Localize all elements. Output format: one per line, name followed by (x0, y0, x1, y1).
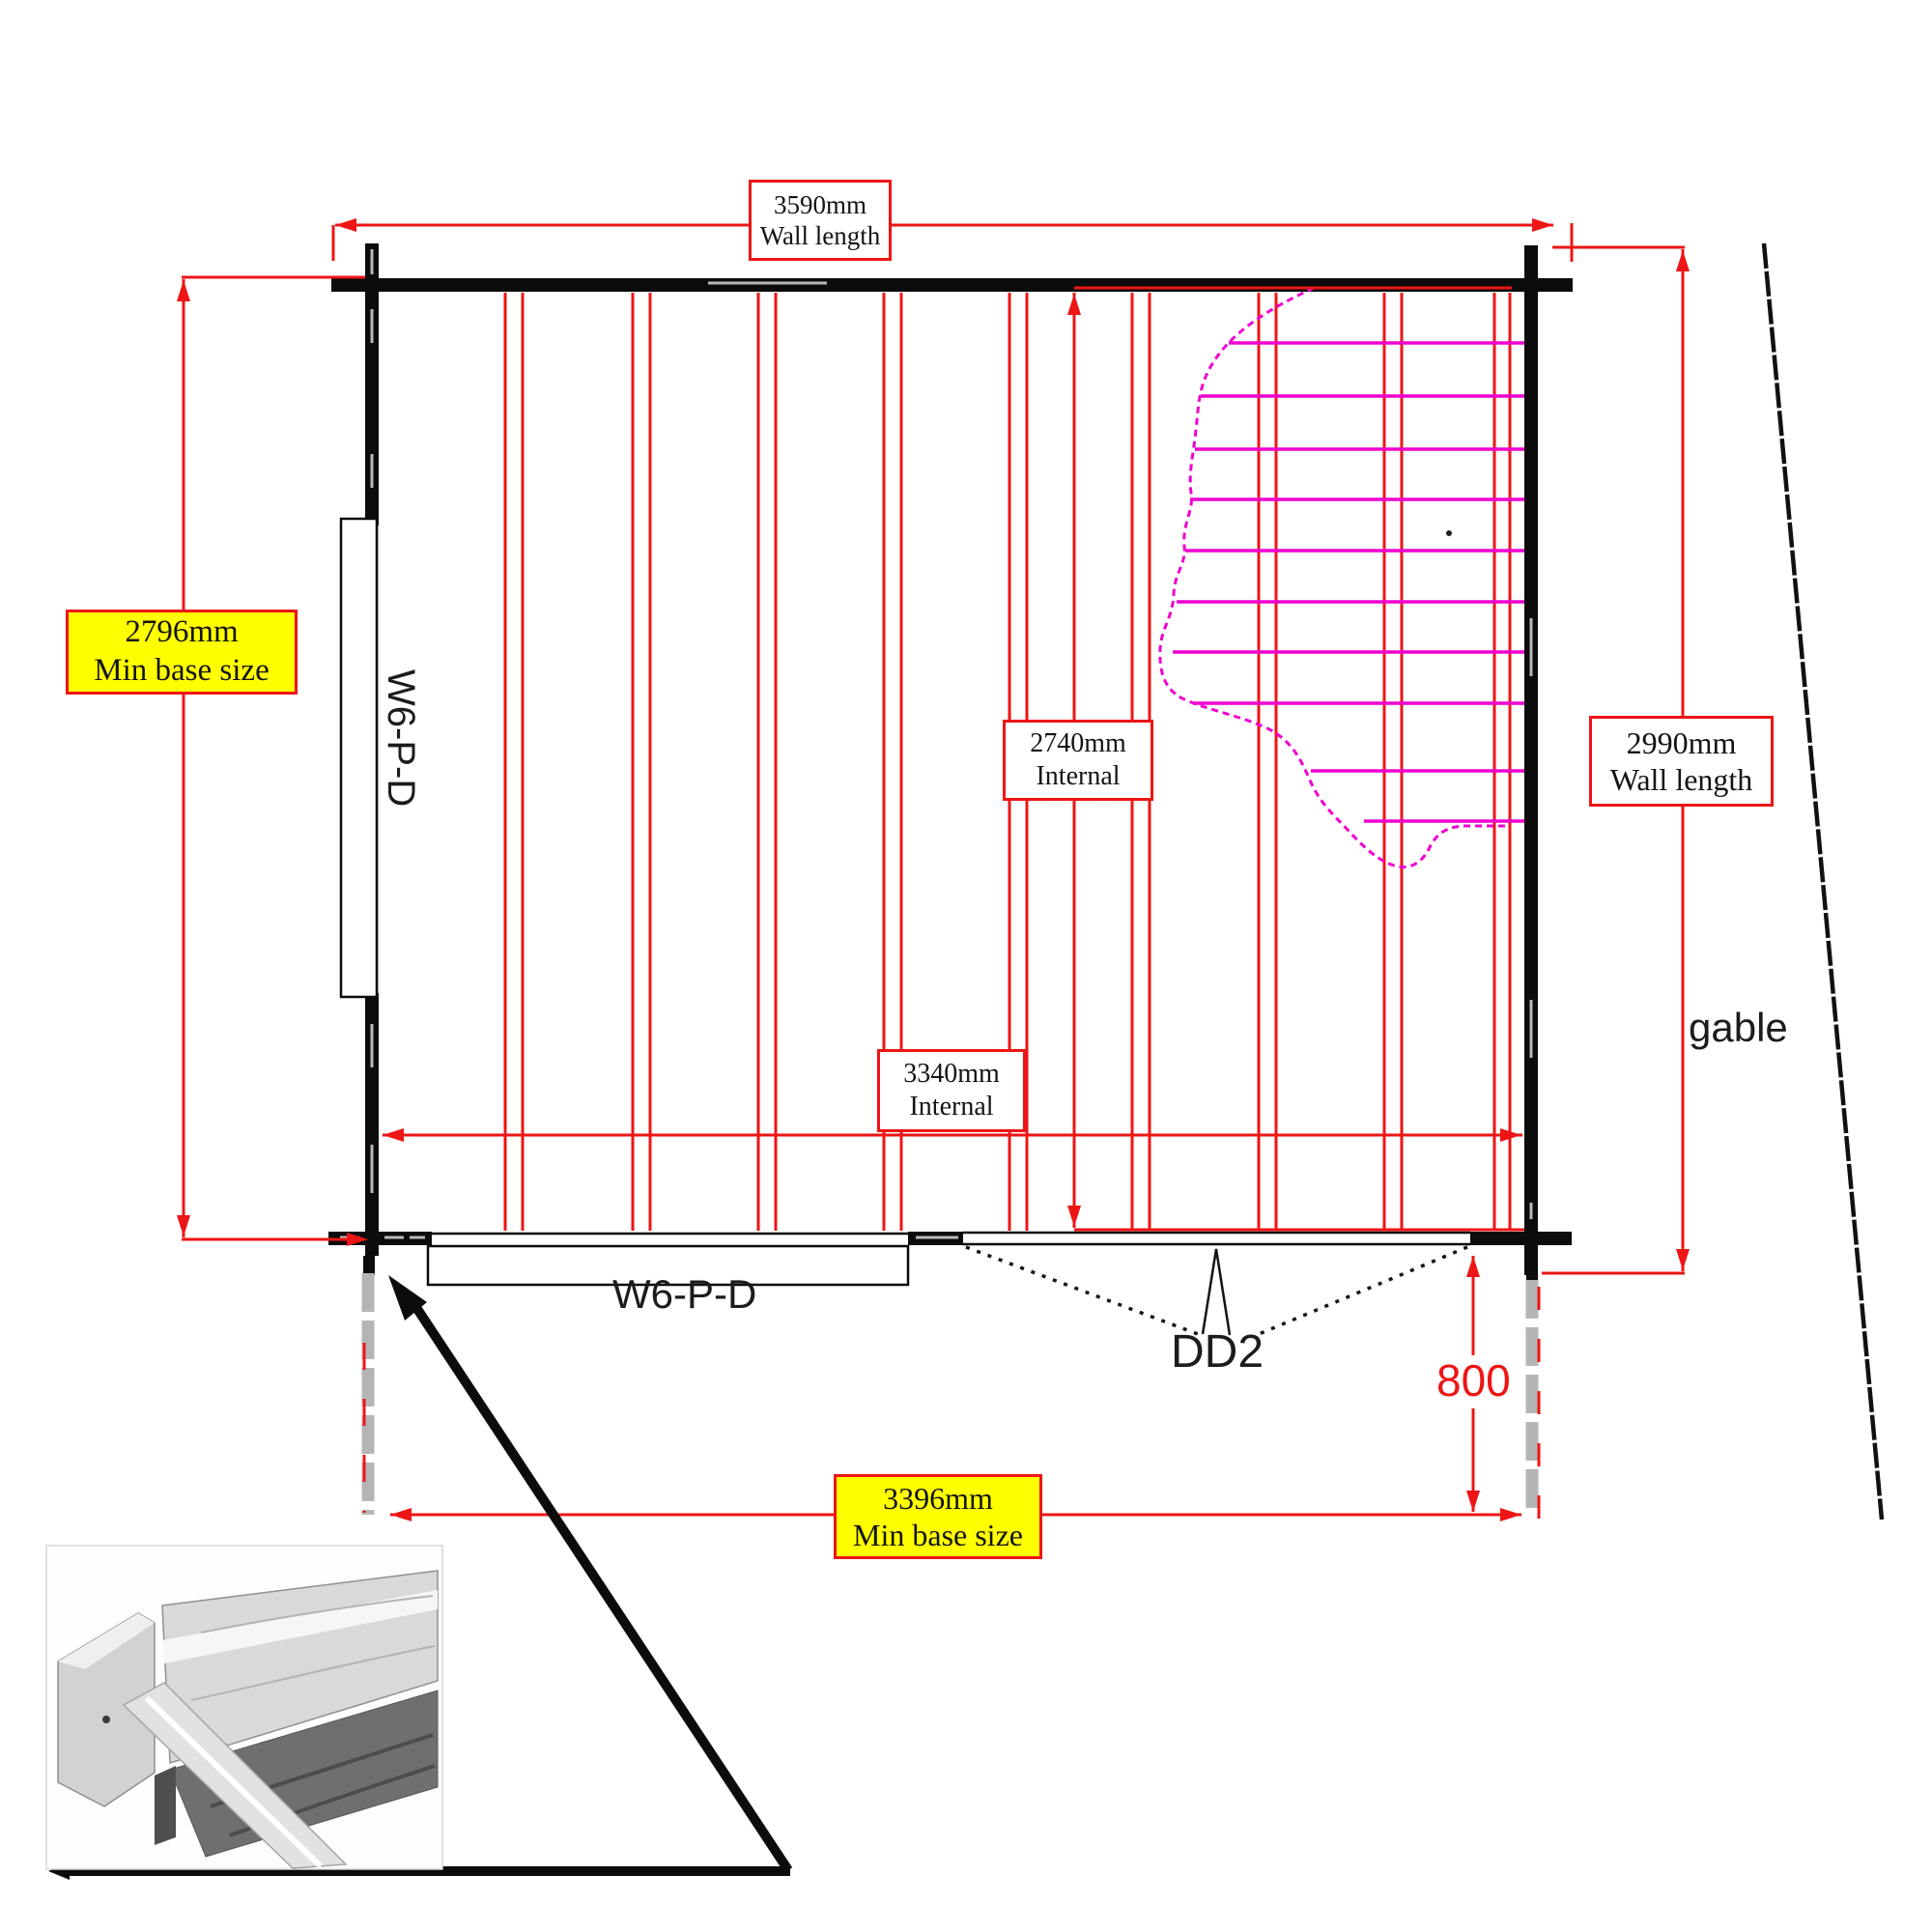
left-window-opening (341, 519, 377, 997)
dim-value: 3396mm (883, 1480, 993, 1517)
gable-roof-line (1764, 243, 1882, 1520)
dim-label-top-wall-length: 3590mm Wall length (749, 180, 892, 261)
dim-value: 2740mm (1030, 727, 1126, 760)
left-post-cap (363, 1256, 375, 1275)
bottom-wall-right (1470, 1232, 1572, 1245)
dim-label-right-wall-length: 2990mm Wall length (1589, 716, 1774, 807)
left-window (341, 519, 377, 997)
dim-label-internal-width: 3340mm Internal (877, 1049, 1026, 1132)
dim-caption: Min base size (853, 1517, 1023, 1553)
dim-value: 3590mm (774, 189, 867, 220)
dim-value: 2796mm (125, 613, 238, 652)
drawing-canvas: 3590mm Wall length 2796mm Min base size … (0, 0, 1932, 1932)
left-window-code-label: W6-P-D (379, 669, 422, 807)
plan-drawing (0, 0, 1932, 1932)
dim-label-internal-height: 2740mm Internal (1003, 720, 1153, 801)
corner-detail-photo (46, 1546, 442, 1869)
door-meeting-stile-mark (1203, 1249, 1230, 1335)
dimension-lines (177, 218, 1690, 1521)
hatched-area-boundary (1160, 288, 1507, 867)
dim-value: 3340mm (903, 1058, 1000, 1091)
door-offset-label: 800 (1436, 1354, 1511, 1406)
screw-head (102, 1716, 110, 1723)
hatched-area (1160, 288, 1524, 867)
dimension-top-3590 (333, 218, 1572, 262)
dim-caption: Internal (1036, 760, 1120, 793)
door-leader (966, 1247, 1467, 1337)
dim-caption: Wall length (760, 220, 881, 251)
gable-label: gable (1689, 1005, 1788, 1051)
dim-caption: Min base size (94, 652, 269, 691)
front-window-code-label: W6-P-D (612, 1271, 756, 1318)
dim-caption: Wall length (1610, 761, 1753, 798)
dim-value: 2990mm (1627, 724, 1737, 761)
dim-label-bottom-min-base: 3396mm Min base size (834, 1474, 1042, 1559)
detail-dot (1446, 530, 1452, 536)
dim-caption: Internal (909, 1091, 993, 1123)
door-opening (963, 1233, 1470, 1244)
top-wall (331, 278, 1573, 292)
right-wall (1524, 245, 1538, 1275)
dimension-left-2796 (177, 277, 368, 1246)
dim-label-left-min-base: 2796mm Min base size (66, 610, 298, 695)
hatch-lines (1173, 343, 1524, 821)
door-code-label: DD2 (1171, 1325, 1264, 1378)
